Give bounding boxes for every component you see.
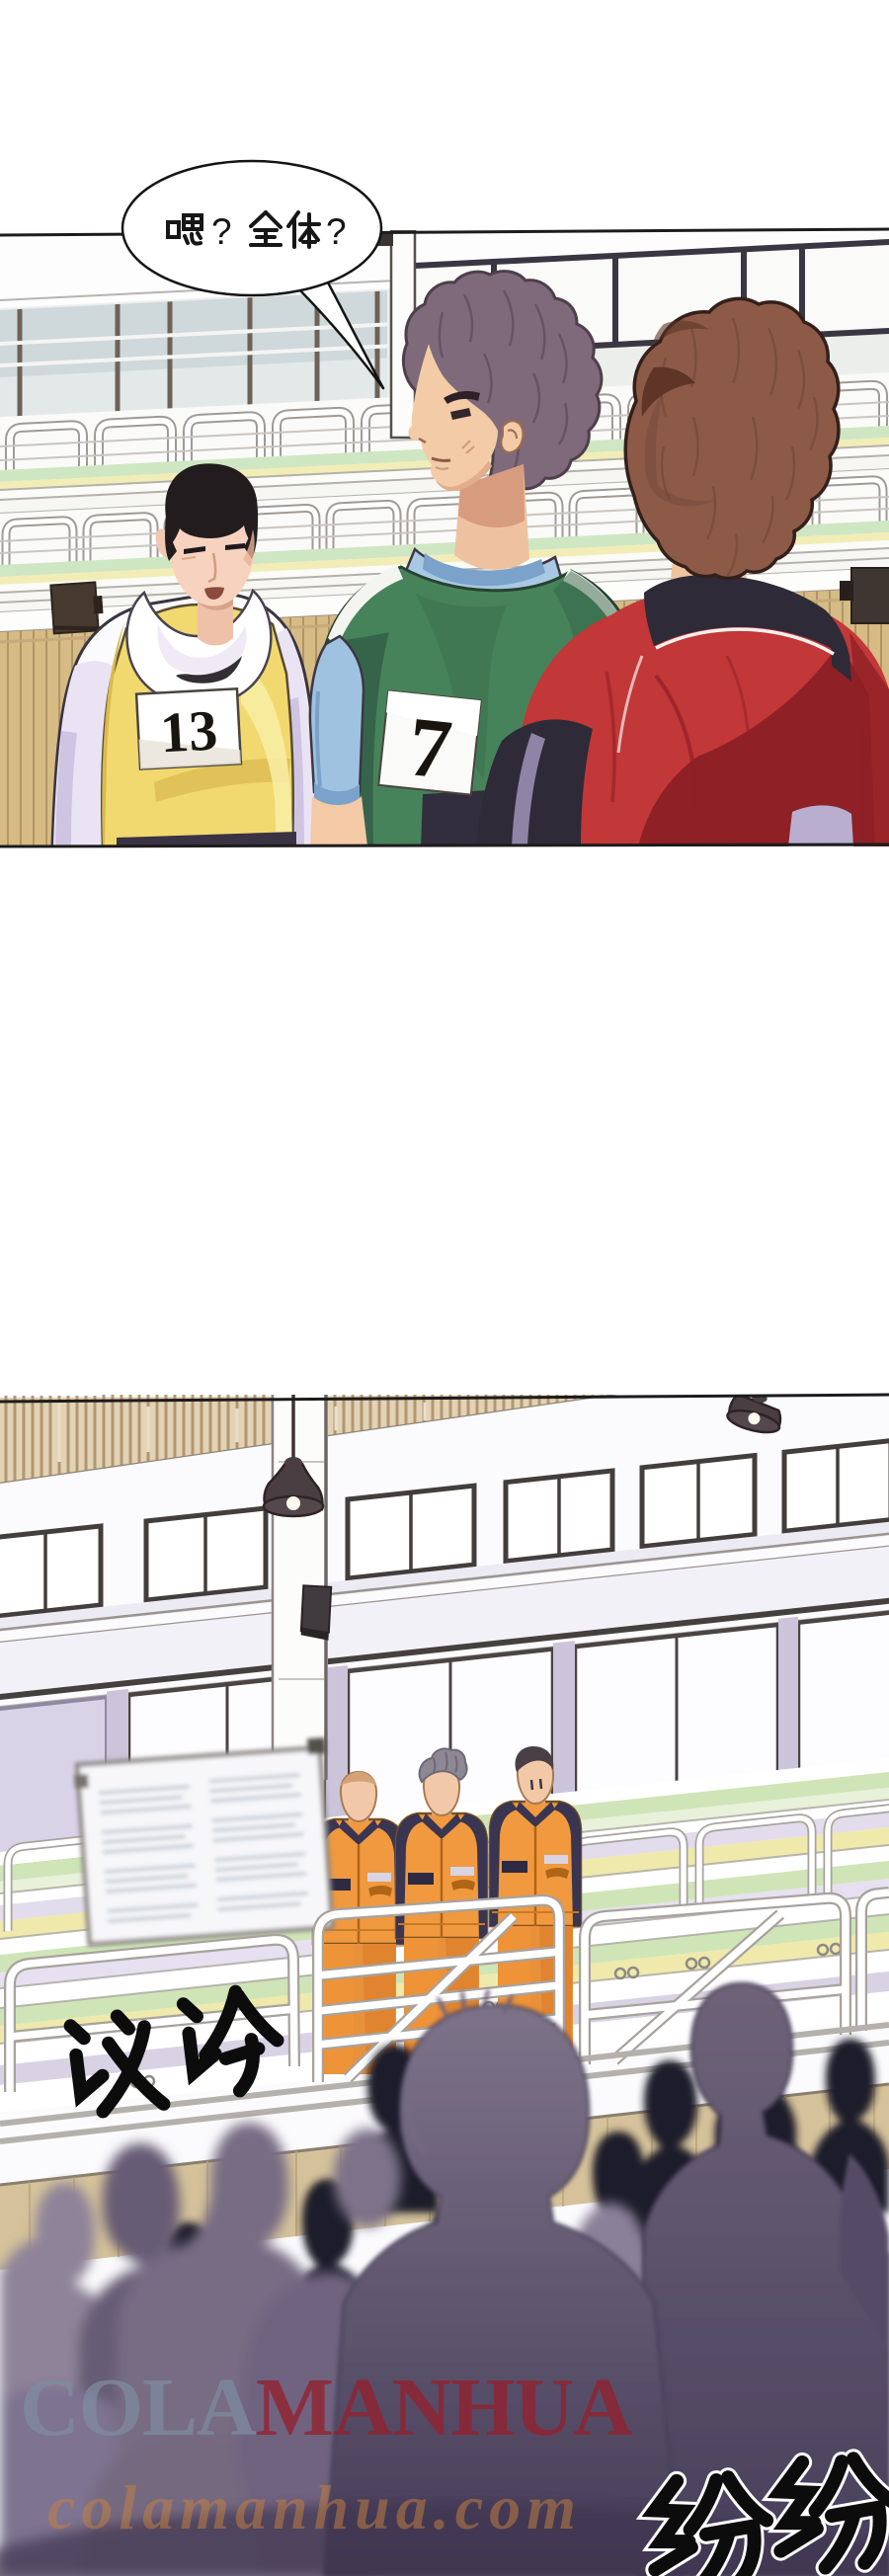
svg-text:13: 13 <box>158 697 218 765</box>
svg-text:COLAMANHUA: COLAMANHUA <box>20 2362 633 2454</box>
svg-text:?: ? <box>326 211 347 252</box>
svg-text:?: ? <box>211 211 232 252</box>
svg-text:colamanhua.com: colamanhua.com <box>47 2472 582 2542</box>
